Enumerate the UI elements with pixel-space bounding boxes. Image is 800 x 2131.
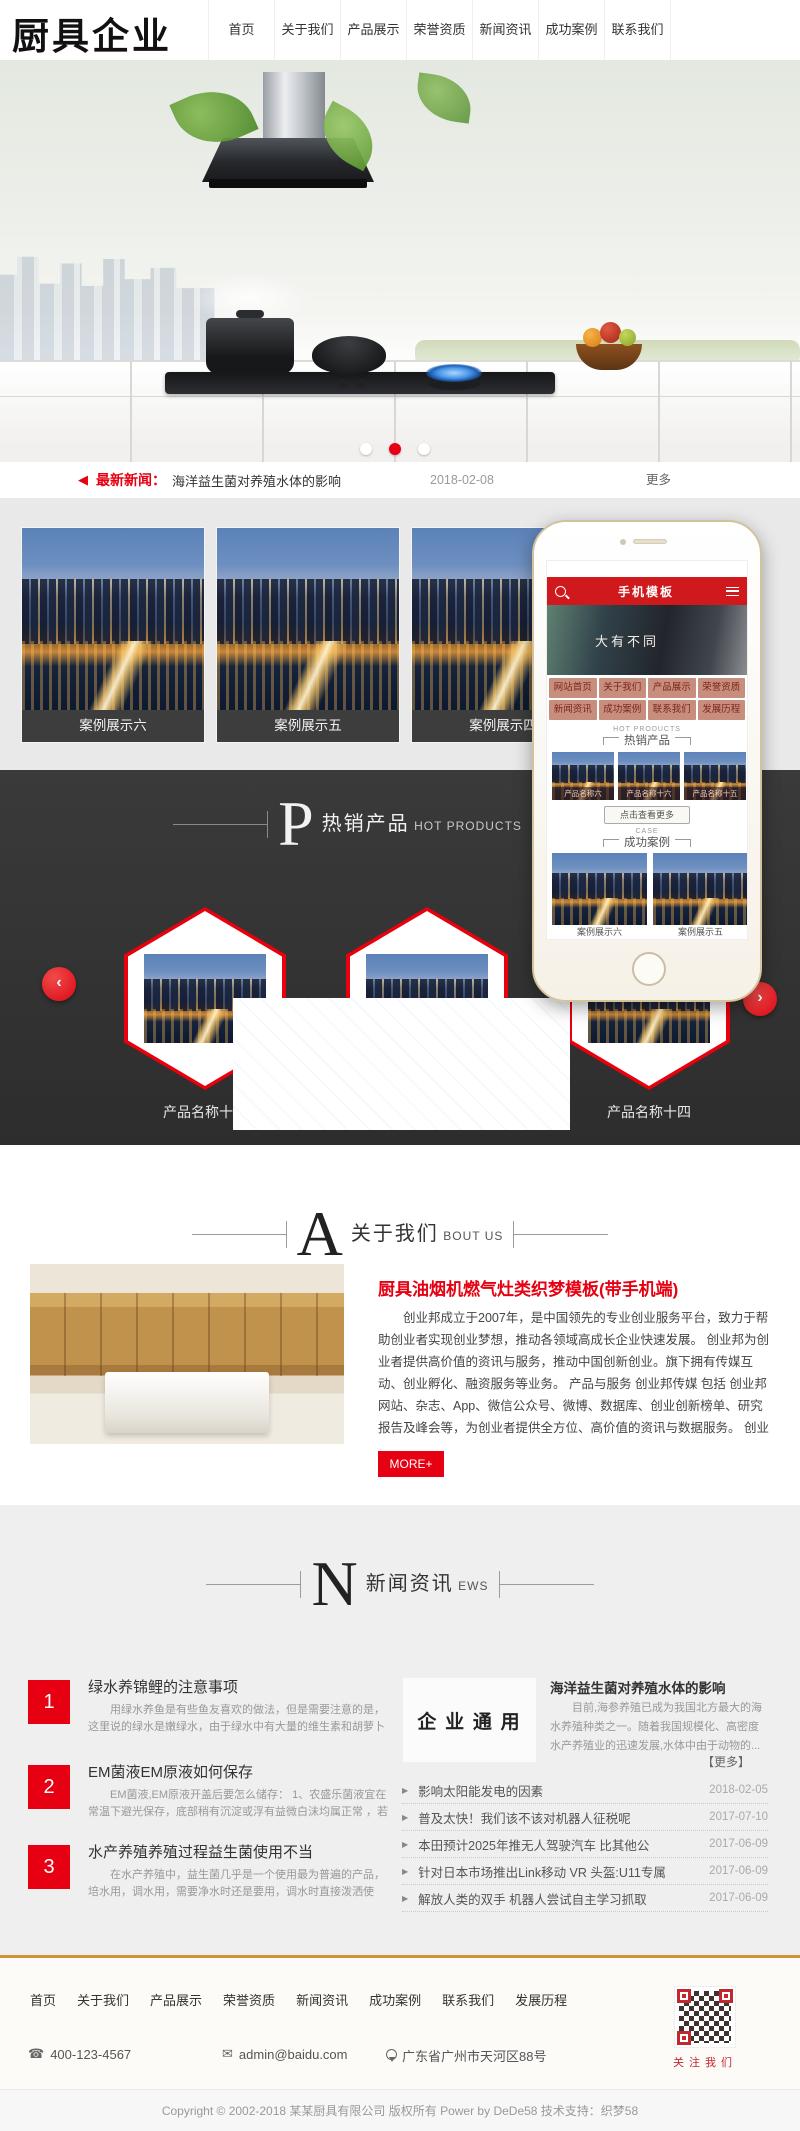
ticker-date: 2018-02-08 (430, 462, 494, 498)
speaker-icon: ◀ (78, 472, 88, 488)
qr-marker (677, 1989, 691, 2003)
prev-arrow-icon[interactable]: ‹ (42, 967, 76, 1001)
phone-case-image (552, 853, 647, 925)
news-section: N 新闻资讯 EWS 1 绿水养锦鲤的注意事项 用绿水养鱼是有些鱼友喜欢的做法，… (0, 1505, 800, 1955)
news-item[interactable]: 1 绿水养锦鲤的注意事项 用绿水养鱼是有些鱼友喜欢的做法，但是需要注意的是，这里… (28, 1678, 390, 1736)
about-more-button[interactable]: MORE+ (378, 1451, 444, 1477)
heading-text: 新闻资讯 EWS (366, 1572, 489, 1596)
phone-case: 案例展示六 (552, 853, 647, 939)
bracket-decoration (675, 737, 691, 745)
phone-screen: 手机模板 大有不同 网站首页 关于我们 产品展示 荣誉资质 新闻资讯 成功案例 … (546, 560, 748, 940)
list-arrow-icon: ▶ (402, 1867, 408, 1876)
email-icon: ✉ (222, 2046, 233, 2062)
phone-header: 手机模板 (547, 577, 747, 605)
phone-banner-text: 大有不同 (595, 631, 659, 650)
carousel-dot[interactable] (418, 443, 430, 455)
news-list-date: 2017-06-09 (709, 1838, 768, 1850)
cooking-pot (206, 318, 294, 374)
phone-products-row: 产品名称六 产品名称十六 产品名称十五 (547, 748, 747, 800)
phone-nav-products: 产品展示 (648, 678, 696, 698)
heading-line (499, 1584, 594, 1585)
nav-item-news[interactable]: 新闻资讯 (473, 0, 539, 60)
range-hood-chimney (263, 72, 325, 140)
about-article-title[interactable]: 厨具油烟机燃气灶类织梦模板(带手机端) (378, 1275, 778, 1300)
phone-case: 案例展示五 (653, 853, 748, 939)
news-item-excerpt: EM菌液,EM原液开盖后要怎么储存： 1、农盛乐菌液宜在常温下避光保存，底部稍有… (88, 1787, 390, 1821)
phone-case-caption: 案例展示五 (653, 925, 748, 939)
phone-case-image (653, 853, 748, 925)
featured-news-excerpt: 目前,海参养殖已成为我国北方最大的海水养殖种类之一。随着我国规模化、高密度水产养… (550, 1699, 768, 1755)
phone-more-button: 点击查看更多 (604, 806, 690, 824)
about-image (30, 1264, 344, 1444)
ticker-headline[interactable]: 海洋益生菌对养殖水体的影响 (172, 471, 341, 490)
heading-text: 热销产品 HOT PRODUCTS (322, 812, 522, 836)
news-list-title: 影响太阳能发电的因素 (418, 1781, 709, 1800)
nav-item-products[interactable]: 产品展示 (341, 0, 407, 60)
ticker-more-link[interactable]: 更多 (646, 462, 671, 498)
news-list-row[interactable]: ▶ 影响太阳能发电的因素 2018-02-05 (402, 1777, 768, 1804)
phone-case-heading: CASE 成功案例 (547, 828, 747, 850)
nav-item-about[interactable]: 关于我们 (275, 0, 341, 60)
site-logo[interactable]: 厨具企业 (12, 6, 172, 60)
about-section: A 关于我们 BOUT US 厨具油烟机燃气灶类织梦模板(带手机端) 创业邦成立… (0, 1145, 800, 1505)
gas-flame (426, 364, 482, 382)
footer-link-contact[interactable]: 联系我们 (442, 1990, 494, 2009)
about-heading: A 关于我们 BOUT US (0, 1145, 800, 1263)
news-list-date: 2017-06-09 (709, 1892, 768, 1904)
bracket-decoration (603, 839, 619, 847)
news-heading: N 新闻资讯 EWS (0, 1505, 800, 1613)
footer-phone-number: 400-123-4567 (50, 2047, 131, 2062)
footer: 首页 关于我们 产品展示 荣誉资质 新闻资讯 成功案例 联系我们 发展历程 ☎ … (0, 1955, 800, 2089)
phone-site-title: 手机模板 (566, 583, 726, 600)
news-item-number: 2 (28, 1765, 70, 1809)
heading-line (513, 1234, 608, 1235)
nav-item-honors[interactable]: 荣誉资质 (407, 0, 473, 60)
featured-more-link[interactable]: 【更多】 (702, 1753, 750, 1770)
heading-en: HOT PRODUCTS (414, 819, 522, 833)
heading-line (192, 1234, 287, 1235)
list-arrow-icon: ▶ (402, 1840, 408, 1849)
heading-initial: A (297, 1205, 343, 1263)
heading-cn: 热销产品 (322, 813, 410, 835)
footer-email-address: admin@baidu.com (239, 2047, 348, 2062)
news-list-title: 针对日本市场推出Link移动 VR 头盔:U11专属 (418, 1862, 709, 1881)
phone-nav-about: 关于我们 (599, 678, 647, 698)
footer-email: ✉ admin@baidu.com (222, 2046, 348, 2062)
qr-marker (677, 2031, 691, 2045)
qr-marker (719, 1989, 733, 2003)
phone-statusbar (547, 561, 747, 577)
phone-mockup: 手机模板 大有不同 网站首页 关于我们 产品展示 荣誉资质 新闻资讯 成功案例 … (532, 520, 762, 1002)
heading-cn: 新闻资讯 (366, 1573, 454, 1595)
footer-link-about[interactable]: 关于我们 (77, 1990, 129, 2009)
news-list-row[interactable]: ▶ 针对日本市场推出Link移动 VR 头盔:U11专属 2017-06-09 (402, 1858, 768, 1885)
phone-case-caption: 案例展示六 (552, 925, 647, 939)
heading-en: BOUT US (443, 1229, 503, 1243)
heading-en: EWS (458, 1579, 488, 1593)
news-list-row[interactable]: ▶ 普及太快！我们该不该对机器人征税呢 2017-07-10 (402, 1804, 768, 1831)
case-image (217, 528, 399, 710)
phone-nav-news: 新闻资讯 (549, 700, 597, 720)
bracket-decoration (675, 839, 691, 847)
list-arrow-icon: ▶ (402, 1786, 408, 1795)
case-image (22, 528, 204, 710)
footer-address: 广东省广州市天河区88号 (386, 2046, 546, 2065)
case-caption: 案例展示六 (22, 710, 204, 742)
ticker-label: 最新新闻： (96, 470, 166, 490)
heading-text: 关于我们 BOUT US (351, 1222, 504, 1246)
location-icon (386, 2049, 396, 2062)
footer-link-cases[interactable]: 成功案例 (369, 1990, 421, 2009)
phone-product: 产品名称十六 (618, 752, 680, 800)
news-list-date: 2017-07-10 (709, 1811, 768, 1823)
menu-icon (726, 587, 739, 596)
hero-skyline (0, 250, 215, 362)
nav-item-cases[interactable]: 成功案例 (539, 0, 605, 60)
news-item-title: EM菌液EM原液如何保存 (88, 1763, 390, 1783)
phone-camera-dot (620, 539, 626, 545)
footer-link-history[interactable]: 发展历程 (515, 1990, 567, 2009)
phone-banner: 大有不同 (547, 605, 747, 675)
news-list-row[interactable]: ▶ 本田预计2025年推无人驾驶汽车 比其他公 2017-06-09 (402, 1831, 768, 1858)
header: 厨具企业 首页 关于我们 产品展示 荣誉资质 新闻资讯 成功案例 联系我们 (0, 0, 800, 60)
news-list-title: 普及太快！我们该不该对机器人征税呢 (418, 1808, 709, 1827)
nav-item-home[interactable]: 首页 (209, 0, 275, 60)
news-item-number: 1 (28, 1680, 70, 1724)
phone-cases-row: 案例展示六 案例展示五 (547, 850, 747, 939)
footer-link-honors[interactable]: 荣誉资质 (223, 1990, 275, 2009)
phone-product: 产品名称十五 (684, 752, 746, 800)
carousel-dot[interactable] (360, 443, 372, 455)
phone-nav-home: 网站首页 (549, 678, 597, 698)
main-nav: 首页 关于我们 产品展示 荣誉资质 新闻资讯 成功案例 联系我们 (208, 0, 671, 60)
news-item-title: 绿水养锦鲤的注意事项 (88, 1678, 390, 1698)
fruit (600, 322, 621, 343)
heading-initial: N (311, 1555, 357, 1613)
footer-address-text: 广东省广州市天河区88号 (402, 2046, 546, 2065)
cooktop-knob (357, 379, 366, 388)
hero-banner (0, 60, 800, 462)
list-arrow-icon: ▶ (402, 1813, 408, 1822)
phone-icon: ☎ (28, 2046, 44, 2062)
list-arrow-icon: ▶ (402, 1894, 408, 1903)
news-list: ▶ 影响太阳能发电的因素 2018-02-05 ▶ 普及太快！我们该不该对机器人… (402, 1777, 768, 1912)
cooktop-knob (338, 379, 347, 388)
phone-nav-grid: 网站首页 关于我们 产品展示 荣誉资质 新闻资讯 成功案例 联系我们 发展历程 (547, 675, 747, 722)
carousel-dot-active[interactable] (389, 443, 401, 455)
news-item[interactable]: 2 EM菌液EM原液如何保存 EM菌液,EM原液开盖后要怎么储存： 1、农盛乐菌… (28, 1763, 390, 1821)
phone-hot-heading: HOT PRODUCTS 热销产品 (547, 726, 747, 748)
ticker-left: ◀ 最新新闻： 海洋益生菌对养殖水体的影响 (78, 462, 341, 498)
case-caption: 案例展示五 (217, 710, 399, 742)
phone-nav-cases: 成功案例 (599, 700, 647, 720)
footer-links: 首页 关于我们 产品展示 荣誉资质 新闻资讯 成功案例 联系我们 发展历程 (30, 1990, 567, 2009)
nav-item-contact[interactable]: 联系我们 (605, 0, 671, 60)
case-card[interactable]: 案例展示六 (22, 528, 204, 742)
heading-cn: 关于我们 (351, 1223, 439, 1245)
news-item-excerpt: 用绿水养鱼是有些鱼友喜欢的做法，但是需要注意的是，这里说的绿水是嫩绿水，由于绿水… (88, 1702, 390, 1736)
phone-hot-en: HOT PRODUCTS (547, 726, 747, 734)
heading-line (206, 1584, 301, 1585)
phone-case-cn: 成功案例 (624, 836, 670, 850)
phone-case-en: CASE (547, 828, 747, 836)
about-article-body: 创业邦成立于2007年，是中国领先的专业创业服务平台，致力于帮助创业者实现创业梦… (378, 1307, 774, 1439)
footer-link-news[interactable]: 新闻资讯 (296, 1990, 348, 2009)
news-list-row[interactable]: ▶ 解放人类的双手 机器人尝试自主学习抓取 2017-06-09 (402, 1885, 768, 1912)
case-card[interactable]: 案例展示五 (217, 528, 399, 742)
phone-nav-contact: 联系我们 (648, 700, 696, 720)
news-list-title: 本田预计2025年推无人驾驶汽车 比其他公 (418, 1835, 709, 1854)
phone-product: 产品名称六 (552, 752, 614, 800)
news-item[interactable]: 3 水产养殖养殖过程益生菌使用不当 在水产养殖中，益生菌几乎是一个使用最为普遍的… (28, 1843, 390, 1901)
footer-link-home[interactable]: 首页 (30, 1990, 56, 2009)
bracket-decoration (603, 737, 619, 745)
copyright-bar: Copyright © 2002-2018 某某厨具有限公司 版权所有 Powe… (0, 2089, 800, 2131)
plant-leaf (413, 72, 475, 123)
phone-nav-honors: 荣誉资质 (698, 678, 746, 698)
phone-product-caption: 产品名称十五 (684, 787, 746, 800)
heading-line (173, 824, 268, 825)
range-hood-glass (209, 179, 367, 188)
news-list-date: 2018-02-05 (709, 1784, 768, 1796)
news-ticker: ◀ 最新新闻： 海洋益生菌对养殖水体的影响 2018-02-08 更多 (0, 462, 800, 498)
featured-news-title[interactable]: 海洋益生菌对养殖水体的影响 (550, 1677, 770, 1697)
carousel-dots (0, 443, 795, 455)
phone-home-button (632, 952, 666, 986)
news-list-date: 2017-06-09 (709, 1865, 768, 1877)
phone-nav-history: 发展历程 (698, 700, 746, 720)
phone-speaker-slit (633, 539, 667, 544)
company-logo-box: 企 业 通 用 (402, 1677, 537, 1763)
news-list-title: 解放人类的双手 机器人尝试自主学习抓取 (418, 1889, 709, 1908)
footer-phone: ☎ 400-123-4567 (28, 2046, 131, 2062)
product-label: 产品名称十四 (568, 1102, 730, 1122)
footer-follow-label: 关注我们 (660, 2054, 750, 2070)
news-item-title: 水产养殖养殖过程益生菌使用不当 (88, 1843, 390, 1863)
fruit (619, 329, 636, 346)
wok (312, 336, 386, 374)
white-overlay-placeholder (233, 998, 570, 1130)
heading-initial: P (278, 795, 314, 853)
qr-code (674, 1986, 736, 2048)
search-icon (555, 586, 566, 597)
page: 厨具企业 首页 关于我们 产品展示 荣誉资质 新闻资讯 成功案例 联系我们 (0, 0, 800, 2131)
news-item-excerpt: 在水产养殖中，益生菌几乎是一个使用最为普遍的产品，培水用，调水用，需要净水时还是… (88, 1867, 390, 1901)
phone-hot-cn: 热销产品 (624, 734, 670, 748)
phone-product-caption: 产品名称六 (552, 787, 614, 800)
news-item-number: 3 (28, 1845, 70, 1889)
footer-link-products[interactable]: 产品展示 (150, 1990, 202, 2009)
phone-product-caption: 产品名称十六 (618, 787, 680, 800)
